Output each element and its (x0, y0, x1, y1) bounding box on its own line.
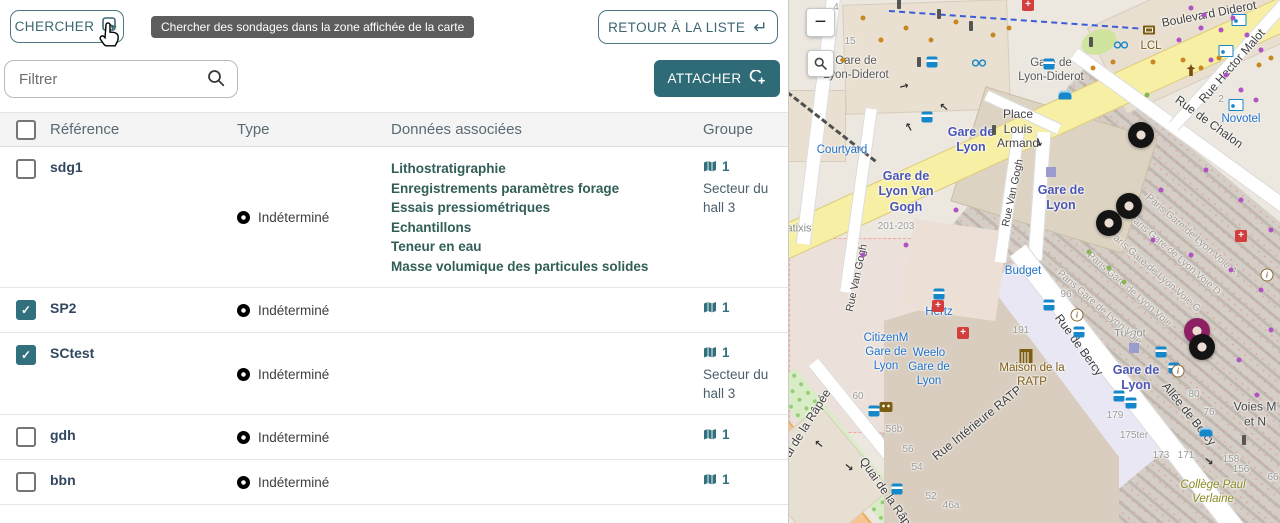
tl-icon (1089, 37, 1093, 47)
group-count-value: 1 (722, 472, 730, 487)
map-label: Collège Paul Verlaine (1158, 478, 1268, 506)
dotp-icon (1177, 38, 1182, 43)
chercher-button-label: CHERCHER (15, 19, 95, 34)
return-arrow-icon: ↵ (753, 19, 768, 36)
row-type: Indéterminé (237, 345, 391, 403)
type-indetermine-icon (237, 304, 250, 317)
associated-data-item[interactable]: Enregistrements paramètres forage (391, 179, 703, 199)
doto-icon (1151, 60, 1156, 65)
dotp-icon (1204, 168, 1209, 173)
dotg-icon (1107, 266, 1112, 271)
doto-icon (929, 38, 934, 43)
row-associated-data: LithostratigraphieEnregistrements paramè… (391, 159, 703, 276)
bus-icon (1044, 300, 1055, 311)
type-indetermine-icon (237, 476, 250, 489)
dotp-icon (1239, 88, 1244, 93)
dotp-icon (1202, 13, 1207, 18)
hotel-icon (1229, 99, 1244, 111)
chercher-button[interactable]: CHERCHER (10, 10, 124, 43)
dotp-icon (1269, 328, 1274, 333)
search-icon (814, 57, 827, 70)
row-type-label: Indéterminé (258, 367, 329, 382)
map-label: 173 (1153, 450, 1170, 462)
row-reference[interactable]: SP2 (50, 300, 76, 316)
map-building (901, 219, 1008, 321)
bus-icon (1156, 347, 1167, 358)
map-label: 191 (1013, 325, 1030, 337)
dotg-icon (1145, 93, 1150, 98)
row-group: 1Secteur du hall 3 (703, 159, 788, 276)
group-count: 1 (703, 427, 788, 442)
attacher-button-label: ATTACHER (668, 71, 742, 86)
tl-icon (937, 9, 941, 19)
doto-icon (879, 38, 884, 43)
bus-icon (892, 484, 903, 495)
bike-icon (1114, 41, 1129, 50)
bus-icon (1114, 391, 1125, 402)
doto-icon (991, 33, 996, 38)
map-label: Gare de Lyon (1108, 363, 1164, 394)
dotg-icon (1122, 280, 1127, 285)
theater-icon (880, 402, 893, 412)
group-count: 1 (703, 345, 788, 360)
info-icon: i (1071, 309, 1084, 322)
col-header-donnees: Données associées (391, 121, 703, 138)
map-group-icon (703, 160, 717, 173)
search-area-icon (102, 17, 119, 36)
row-type: Indéterminé (237, 159, 391, 276)
dotp-icon (1231, 16, 1236, 21)
taxi-icon (1059, 91, 1072, 100)
dotg-icon (1087, 250, 1092, 255)
doto-icon (1269, 56, 1274, 61)
row-group: 1 (703, 427, 788, 448)
map-label: 56b (886, 424, 903, 436)
map-label: 60 (852, 391, 863, 403)
dotp-icon (1189, 253, 1194, 258)
map-group-icon (703, 428, 717, 441)
row-reference[interactable]: SCtest (50, 345, 94, 361)
map-label: 54 (911, 462, 922, 474)
bus-icon (934, 289, 945, 300)
map-label: 179 (1107, 410, 1124, 422)
group-count-value: 1 (722, 345, 730, 360)
table-body: sdg1IndéterminéLithostratigraphieEnregis… (0, 147, 788, 505)
group-name: Secteur du hall 3 (703, 179, 775, 217)
group-count: 1 (703, 472, 788, 487)
map-label: 46a (943, 500, 960, 512)
taxi-icon (1200, 428, 1213, 437)
group-count-value: 1 (722, 427, 730, 442)
museum-icon (1020, 349, 1033, 363)
group-count: 1 (703, 159, 788, 174)
map-label: 15 (844, 36, 855, 48)
associated-data-item[interactable]: Lithostratigraphie (391, 159, 703, 179)
pharmacy-icon: + (1235, 230, 1247, 242)
sondage-marker[interactable] (1189, 334, 1215, 360)
row-associated-data (391, 300, 703, 321)
row-associated-data (391, 472, 703, 493)
pharmacy-icon: + (1022, 0, 1034, 11)
doto-icon (904, 26, 909, 31)
filter-input[interactable] (17, 61, 201, 97)
sondages-table: Référence Type Données associées Groupe … (0, 112, 788, 505)
dotp-icon (1259, 288, 1264, 293)
map-label: 66 (1267, 472, 1278, 484)
row-group: 1Secteur du hall 3 (703, 345, 788, 403)
row-group: 1 (703, 472, 788, 493)
sondage-marker[interactable] (1128, 122, 1154, 148)
row-associated-data (391, 427, 703, 448)
bike-icon (972, 59, 987, 68)
row-type: Indéterminé (237, 427, 391, 448)
row-type: Indéterminé (237, 300, 391, 321)
map-label: Gare de Lyon (1033, 183, 1089, 214)
table-header-row: Référence Type Données associées Groupe (0, 112, 788, 147)
dotp-icon (1209, 58, 1214, 63)
info-icon: i (1172, 365, 1185, 378)
dotp-icon (1151, 238, 1156, 243)
dotp-icon (1237, 358, 1242, 363)
row-associated-data (391, 345, 703, 403)
map-label: 80 (1188, 389, 1199, 401)
map-panel[interactable]: Gare de Lyon-DiderotGare de Lyon-Diderot… (788, 0, 1280, 523)
tl-icon (917, 57, 921, 67)
map-group-icon (703, 301, 717, 314)
group-name: Secteur du hall 3 (703, 365, 775, 403)
doto-icon (1091, 66, 1096, 71)
doto-icon (1257, 63, 1262, 68)
map-label: 56 (902, 444, 913, 456)
row-checkbox[interactable] (16, 472, 36, 492)
table-row: bbnIndéterminé1 (0, 460, 788, 505)
dotp-icon (1189, 6, 1194, 11)
row-type-label: Indéterminé (258, 430, 329, 445)
col-header-type: Type (237, 121, 391, 138)
dotp-icon (1259, 48, 1264, 53)
left-panel: CHERCHER Chercher des sondages dans la z… (0, 0, 788, 523)
bus-icon (1126, 398, 1137, 409)
table-row: SP2Indéterminé1 (0, 288, 788, 333)
app-window: CHERCHER Chercher des sondages dans la z… (0, 0, 1280, 523)
dotp-icon (861, 253, 866, 258)
group-count-value: 1 (722, 300, 730, 315)
lav-icon (1046, 167, 1056, 177)
dotp-icon (1245, 33, 1250, 38)
map-label: 2 (1218, 94, 1224, 106)
doto-icon (861, 16, 866, 21)
retour-button-label: RETOUR À LA LISTE (608, 20, 745, 35)
doto-icon (1217, 56, 1222, 61)
select-all-checkbox[interactable] (16, 120, 36, 140)
associated-data-item[interactable]: Echantillons (391, 218, 703, 238)
sondage-marker[interactable] (1096, 210, 1122, 236)
dotp-icon (904, 243, 909, 248)
doto-icon (954, 20, 959, 25)
row-checkbox[interactable] (16, 159, 36, 179)
map-label: Novotel (1222, 113, 1261, 127)
map-label: 175ter (1120, 430, 1148, 442)
table-row: gdhIndéterminé1 (0, 415, 788, 460)
map-label: 52 (925, 491, 936, 503)
tooltip: Chercher des sondages dans la zone affic… (151, 16, 474, 38)
row-reference[interactable]: gdh (50, 427, 76, 443)
tl-icon (992, 125, 996, 135)
map-group-icon (703, 346, 717, 359)
row-type-label: Indéterminé (258, 210, 329, 225)
search-icon (207, 69, 225, 87)
map-label: 156 (1233, 464, 1250, 476)
bus-icon (927, 57, 938, 68)
link-plus-icon (749, 70, 766, 88)
type-indetermine-icon (237, 431, 250, 444)
dotp-icon (1269, 228, 1274, 233)
row-group: 1 (703, 300, 788, 321)
group-count-value: 1 (722, 159, 730, 174)
dotp-icon (954, 208, 959, 213)
tl-icon (897, 0, 901, 9)
dotp-icon (1199, 26, 1204, 31)
map-group-icon (703, 473, 717, 486)
lav-icon (1129, 343, 1139, 353)
row-type: Indéterminé (237, 472, 391, 493)
bus-icon (1044, 59, 1055, 70)
table-row: SCtestIndéterminé1Secteur du hall 3 (0, 333, 788, 415)
map-label: Courtyard (817, 144, 868, 158)
bus-icon (922, 112, 933, 123)
retour-liste-button[interactable]: RETOUR À LA LISTE ↵ (598, 10, 778, 44)
map-label: Gare de Lyon Van Gogh (875, 169, 937, 215)
row-type-label: Indéterminé (258, 303, 329, 318)
dotp-icon (1159, 188, 1164, 193)
tl-icon (1242, 435, 1246, 445)
tl-icon (969, 21, 973, 31)
type-indetermine-icon (237, 368, 250, 381)
filter-field (4, 60, 238, 98)
table-row: sdg1IndéterminéLithostratigraphieEnregis… (0, 147, 788, 288)
doto-icon (841, 58, 846, 63)
doto-icon (1199, 66, 1204, 71)
map-label: 171 (1178, 450, 1195, 462)
dotp-icon (1239, 198, 1244, 203)
row-reference[interactable]: sdg1 (50, 159, 83, 175)
dotp-icon (1224, 73, 1229, 78)
col-header-groupe: Groupe (703, 121, 788, 138)
doto-icon (1111, 60, 1116, 65)
map-label: atixis (788, 222, 812, 235)
bus-icon (1074, 327, 1085, 338)
arrow-icon: → (901, 120, 917, 134)
row-checkbox[interactable] (16, 427, 36, 447)
doto-icon (1181, 58, 1186, 63)
bus-icon (869, 406, 880, 417)
pharmacy-icon: + (932, 300, 944, 312)
dotp-icon (1219, 28, 1224, 33)
map-label: Voies M et N (1232, 399, 1278, 428)
row-type-label: Indéterminé (258, 475, 329, 490)
type-indetermine-icon (237, 211, 250, 224)
dotp-icon (1254, 98, 1259, 103)
row-checkbox[interactable] (16, 300, 36, 320)
group-count: 1 (703, 300, 788, 315)
map-label: 96 (1060, 289, 1071, 301)
dotp-icon (1255, 393, 1260, 398)
row-checkbox[interactable] (16, 345, 36, 365)
bank-icon (1143, 26, 1155, 35)
hotel-icon (1219, 45, 1234, 57)
map-label: Budget (1005, 265, 1041, 279)
map-search-button[interactable] (807, 50, 834, 77)
associated-data-item[interactable]: Teneur en eau (391, 237, 703, 257)
row-reference[interactable]: bbn (50, 472, 76, 488)
map-label: Maison de la RATP (991, 361, 1073, 389)
map-label: Weelo Gare de Lyon (903, 346, 955, 388)
associated-data-item[interactable]: Essais pressiométriques (391, 198, 703, 218)
associated-data-item[interactable]: Masse volumique des particules solides (391, 257, 703, 277)
attacher-button[interactable]: ATTACHER (654, 60, 780, 97)
map-label: LCL (1140, 40, 1161, 54)
map-label: 201-203 (878, 221, 915, 233)
doto-icon (1007, 26, 1012, 31)
dotp-icon (1229, 268, 1234, 273)
zoom-out-button[interactable]: − (806, 8, 835, 37)
info-icon: i (1261, 269, 1274, 282)
col-header-reference: Référence (50, 121, 237, 138)
pharmacy-icon: + (957, 327, 969, 339)
map-label: 76 (1203, 407, 1214, 419)
